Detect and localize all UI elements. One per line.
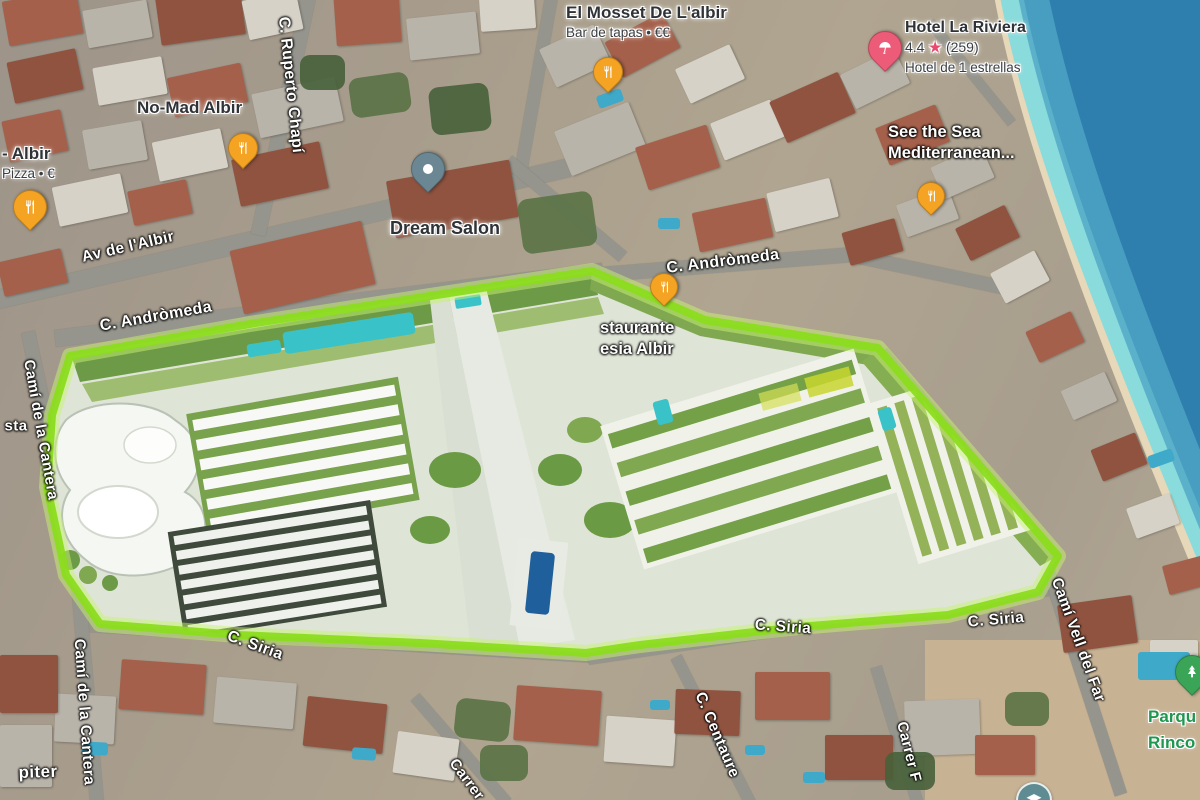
- poi-subtitle: Hotel de 1 estrellas: [905, 60, 1026, 77]
- street-label-cantera-lower: Camí de la Cantera: [69, 638, 99, 786]
- park-pin[interactable]: [1168, 648, 1200, 696]
- hotel-pin-la-riviera[interactable]: [861, 24, 909, 72]
- restaurant-pin-no-mad[interactable]: [222, 127, 264, 169]
- street-label-av-albir: Av de l'Albir: [80, 227, 176, 267]
- poi-title-line2: esia Albir: [600, 340, 674, 358]
- poi-title: No-Mad Albir: [137, 98, 242, 117]
- street-label-centaure: C. Centaure: [690, 689, 744, 781]
- street-label-piter-fragment: piter: [18, 761, 58, 784]
- street-label-cami-vell-del-far: Camí Vell del Far: [1047, 575, 1110, 705]
- fork-knife-icon: [601, 65, 615, 79]
- fork-knife-icon: [236, 141, 250, 155]
- restaurant-pin-pizza[interactable]: [6, 183, 54, 231]
- street-label-sta-fragment: sta: [5, 418, 28, 437]
- poi-title-line2: Rinco: [1148, 733, 1195, 752]
- star-icon: ★: [929, 39, 942, 55]
- school-icon[interactable]: [1016, 782, 1052, 800]
- poi-title-line1: See the Sea: [888, 123, 981, 141]
- mortarboard-icon: [1025, 791, 1043, 800]
- poi-title-line1: staurante: [600, 319, 674, 337]
- poi-label-albir-pizza[interactable]: - Albir Pizza • €: [2, 143, 55, 183]
- street-label-ruperto-chapi: C. Ruperto Chapí: [273, 16, 307, 154]
- poi-title-line1: Parqu: [1148, 707, 1196, 726]
- poi-label-no-mad[interactable]: No-Mad Albir: [137, 97, 242, 118]
- poi-subtitle: Pizza • €: [2, 166, 55, 183]
- street-label-carrer-bottom: Carrer: [444, 755, 488, 800]
- poi-label-dream-salon[interactable]: Dream Salon: [390, 217, 500, 240]
- restaurant-pin-el-mosset[interactable]: [587, 51, 629, 93]
- street-label-andromeda-left: C. Andròmeda: [98, 297, 213, 336]
- white-dot-icon: [423, 164, 433, 174]
- poi-label-hotel-la-riviera[interactable]: Hotel La Riviera 4.4 ★ (259) Hotel de 1 …: [905, 18, 1026, 77]
- fork-knife-icon: [658, 281, 671, 294]
- review-count: (259): [946, 39, 979, 55]
- satellite-map-view[interactable]: El Mosset De L'albir Bar de tapas • €€ N…: [0, 0, 1200, 800]
- poi-label-restaurante[interactable]: staurante esia Albir: [600, 318, 674, 359]
- poi-title: Dream Salon: [390, 218, 500, 238]
- poi-title: Hotel La Riviera: [905, 19, 1026, 36]
- pine-tree-icon: [1184, 664, 1200, 680]
- restaurant-pin-see-the-sea[interactable]: [911, 176, 951, 216]
- place-pin-dream-salon[interactable]: [404, 145, 452, 193]
- poi-label-see-the-sea[interactable]: See the Sea Mediterranean...: [888, 122, 1015, 163]
- poi-title: - Albir: [2, 144, 50, 163]
- poi-label-el-mosset[interactable]: El Mosset De L'albir Bar de tapas • €€: [566, 2, 727, 42]
- street-label-andromeda-top: C. Andròmeda: [665, 245, 780, 279]
- rating-value: 4.4: [905, 39, 924, 55]
- poi-label-park[interactable]: Parqu Rinco: [1148, 704, 1196, 755]
- poi-title-line2: Mediterranean...: [888, 144, 1015, 162]
- street-label-siria-left: C. Siria: [224, 627, 286, 666]
- street-label-siria-right: C. Siria: [967, 608, 1025, 632]
- street-label-siria-mid: C. Siria: [754, 615, 812, 638]
- poi-subtitle: Bar de tapas • €€: [566, 25, 727, 42]
- fork-knife-icon: [22, 199, 38, 215]
- beach-umbrella-icon: [877, 40, 893, 56]
- poi-title: El Mosset De L'albir: [566, 3, 727, 22]
- street-label-carrer-f: Carrer F: [891, 720, 924, 784]
- fork-knife-icon: [925, 190, 938, 203]
